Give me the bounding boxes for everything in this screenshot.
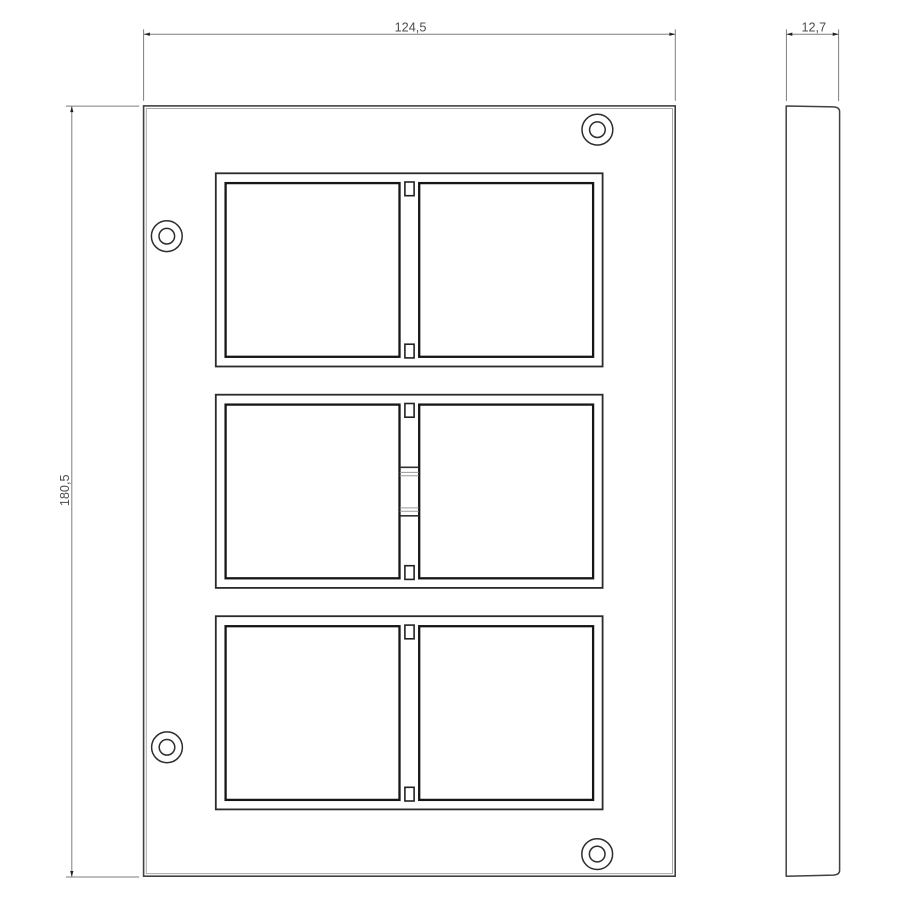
svg-text:180,5: 180,5 xyxy=(58,474,72,506)
svg-text:12,7: 12,7 xyxy=(801,20,826,34)
svg-text:124,5: 124,5 xyxy=(395,20,427,34)
